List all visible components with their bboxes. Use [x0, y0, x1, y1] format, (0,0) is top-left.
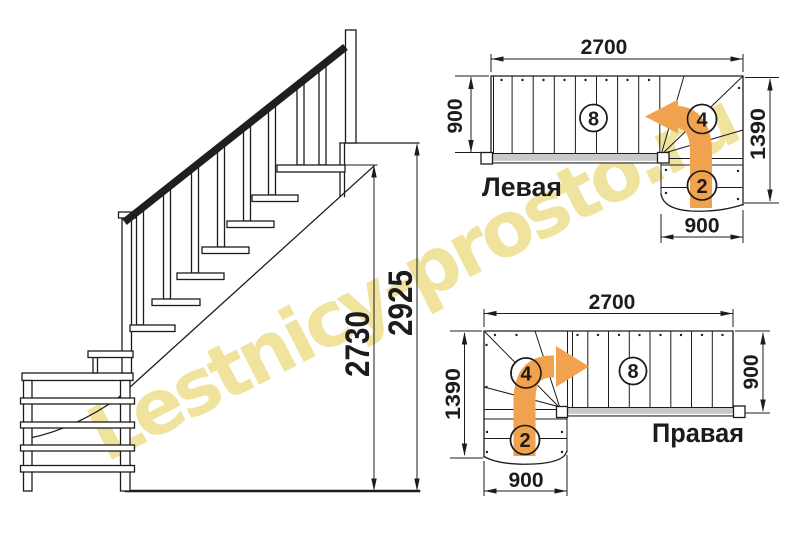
- handrail: [125, 47, 346, 222]
- start-step-count: 2: [696, 176, 707, 198]
- dimension-flight-height: 2730: [339, 165, 377, 491]
- guard-rail: [21, 445, 135, 451]
- dim-label-1390: 1390: [747, 108, 770, 160]
- baluster: [218, 145, 225, 247]
- walk-direction-arrow-right: [525, 346, 590, 456]
- top-tread: [277, 165, 345, 172]
- flight-step-count: 8: [588, 108, 599, 130]
- dimension-turn-depth: 1390: [744, 78, 779, 204]
- baluster: [244, 125, 251, 221]
- baluster: [137, 209, 144, 325]
- newel-square: [481, 153, 493, 165]
- arrow-head-left-icon: [645, 100, 678, 134]
- plan-right-title: Правая: [652, 418, 744, 448]
- stair-diagram-canvas: 2730 2925 2700: [0, 0, 800, 549]
- platform-right-post: [121, 381, 131, 492]
- dim-label-2925: 2925: [382, 270, 420, 336]
- baluster: [297, 83, 304, 165]
- dimension-flight-width: 900: [444, 76, 489, 153]
- guard-rail: [21, 398, 135, 404]
- top-newel-post: [346, 30, 357, 143]
- dim-label-900-bottom: 900: [684, 215, 719, 238]
- winder-step-count: 4: [696, 109, 708, 131]
- flight-step-count: 8: [627, 361, 638, 383]
- side-elevation: 2730 2925: [21, 30, 421, 491]
- tread: [130, 325, 175, 332]
- dimension-start-width: 900: [661, 210, 743, 243]
- dim-label-2700: 2700: [581, 36, 628, 59]
- dim-label-900-right: 900: [740, 354, 763, 389]
- dim-label-1390: 1390: [442, 368, 465, 420]
- staircase-drawing: Lestnicy-prosto.ru: [0, 0, 800, 549]
- guard-rail: [21, 466, 135, 473]
- baluster: [319, 66, 326, 165]
- newel-square: [734, 406, 746, 418]
- winder-step-count: 4: [520, 363, 532, 385]
- tread: [88, 351, 133, 358]
- plan-right-turn: 2700: [442, 291, 770, 496]
- dimension-turn-depth: 1390: [442, 331, 483, 458]
- guard-rail: [21, 422, 135, 428]
- tread: [177, 273, 224, 280]
- baluster: [192, 166, 199, 273]
- plan-left-title: Левая: [482, 172, 562, 202]
- tread: [152, 299, 200, 306]
- dim-label-900-bottom: 900: [508, 469, 543, 492]
- bottom-newel-post: [122, 218, 132, 373]
- platform-top: [22, 373, 133, 381]
- start-platform: [21, 373, 135, 491]
- tread: [202, 247, 249, 254]
- dimension-flight-width: 900: [735, 331, 770, 413]
- tread-support: [93, 358, 98, 374]
- dimension-total-height: 2925: [382, 143, 420, 491]
- start-step-count: 2: [519, 430, 530, 452]
- platform-left-post: [24, 381, 33, 492]
- dim-label-2700: 2700: [589, 291, 636, 314]
- plan-left-turn: 2700: [444, 36, 779, 243]
- newel-square: [557, 407, 568, 418]
- newel-square: [658, 153, 670, 164]
- dim-label-2730: 2730: [339, 311, 377, 377]
- tread: [227, 221, 274, 228]
- baluster: [269, 105, 276, 195]
- dim-label-900-left: 900: [444, 98, 467, 133]
- flight-tread-lines: [588, 331, 713, 407]
- baluster: [164, 188, 171, 299]
- tread: [252, 195, 298, 202]
